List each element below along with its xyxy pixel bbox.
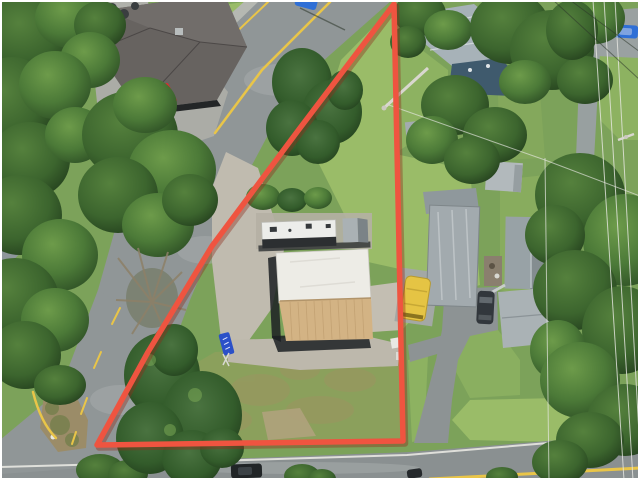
- patio-item: [489, 263, 495, 269]
- building-white-roof: [276, 249, 371, 303]
- tree: [34, 365, 86, 405]
- patio-table: [131, 2, 139, 10]
- ac-unit: [468, 68, 472, 72]
- building-tan-roof: [279, 298, 373, 341]
- pole-base: [382, 106, 387, 111]
- camper-vent: [270, 227, 277, 232]
- tree: [113, 77, 177, 133]
- deck-patio: [484, 256, 502, 286]
- dark-car-rear-window: [478, 315, 491, 321]
- tree: [557, 56, 613, 104]
- aerial-photo: [0, 0, 640, 480]
- tree: [162, 174, 218, 226]
- camper-vent: [326, 224, 331, 228]
- tree: [546, 0, 598, 60]
- dark-car-driveway: [476, 291, 495, 325]
- tree: [499, 60, 551, 104]
- tree-highlight: [188, 388, 202, 402]
- black-car-roof: [238, 467, 252, 475]
- ac-unit: [486, 64, 490, 68]
- dirt-patch: [324, 368, 376, 392]
- shrub: [50, 415, 70, 435]
- utility-pole: [624, 135, 628, 139]
- property-shed: [342, 218, 358, 243]
- tree: [304, 187, 332, 209]
- tree: [277, 188, 307, 212]
- patio-item: [495, 274, 500, 279]
- skylight: [175, 28, 183, 35]
- tree: [424, 10, 472, 50]
- car-bottom-road: [231, 463, 262, 478]
- property-shed-east-face: [357, 218, 368, 243]
- property-trailer-group: [258, 218, 371, 252]
- dark-car-windshield: [479, 297, 492, 304]
- camper-vent: [306, 224, 312, 229]
- tree-highlight: [164, 424, 176, 436]
- tree: [444, 136, 500, 184]
